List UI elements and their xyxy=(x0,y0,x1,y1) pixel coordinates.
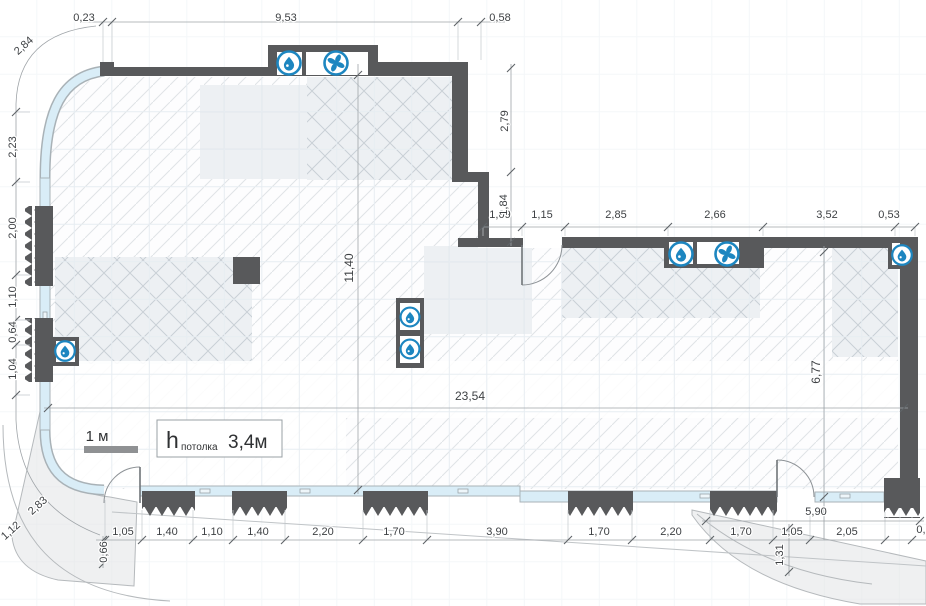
scale-bar-rect xyxy=(84,446,138,453)
fan-icon xyxy=(324,51,348,75)
floor-plan-page: 0,239,530,582,841,091,152,852,663,520,53… xyxy=(0,0,926,606)
dimension-label: 9,53 xyxy=(275,12,296,24)
dimension-label: 1,70 xyxy=(730,526,751,538)
ceiling-height-box: h потолка 3,4м xyxy=(157,420,282,457)
dimension-label: 1,10 xyxy=(201,526,222,538)
ceiling-h-symbol: h xyxy=(166,427,179,453)
dimension-label: 2,66 xyxy=(704,209,725,221)
water-drop-icon xyxy=(55,341,75,361)
dimension-label: 5,90 xyxy=(805,506,826,518)
water-drop-icon xyxy=(401,308,420,327)
water-drop-icon xyxy=(401,340,420,359)
dimension-label: 1,15 xyxy=(531,209,552,221)
dimension-label: 2,20 xyxy=(660,526,681,538)
dimension-label: 2,00 xyxy=(7,217,19,238)
scale-bar-label: 1 м xyxy=(86,428,109,445)
dimension-label: 3,90 xyxy=(486,526,507,538)
ceiling-h-subscript: потолка xyxy=(181,442,218,453)
dimension-label: 1,04 xyxy=(7,358,19,379)
wall-segment xyxy=(103,67,270,76)
dimension-label: 2,20 xyxy=(312,526,333,538)
dimension-label: 1,31 xyxy=(774,544,786,565)
dimension-label: 0,66 xyxy=(98,541,110,562)
dimension-label: 23,54 xyxy=(455,389,485,403)
dimension-label: 0,53 xyxy=(878,209,899,221)
dimension-label: 0, xyxy=(916,524,925,536)
dimension-label: 1,40 xyxy=(156,526,177,538)
dimension-label: 2,85 xyxy=(605,209,626,221)
dimension-label: 2,79 xyxy=(499,110,511,131)
dimension-label: 3,52 xyxy=(816,209,837,221)
wall-segment xyxy=(452,62,468,174)
column xyxy=(233,257,260,284)
wall-segment xyxy=(884,478,920,508)
ceiling-h-value: 3,4м xyxy=(228,432,267,453)
dimension-label: 1,70 xyxy=(588,526,609,538)
dimension-label: 0,23 xyxy=(73,12,94,24)
fan-icon xyxy=(715,242,739,266)
dimension-label: 1,05 xyxy=(112,526,133,538)
dimension-label: 1,05 xyxy=(781,526,802,538)
dimension-label: 1,70 xyxy=(383,526,404,538)
dimension-label: 1,84 xyxy=(498,194,510,215)
wall-segment xyxy=(900,237,918,478)
water-drop-icon xyxy=(278,52,301,75)
dimension-label: 1,10 xyxy=(7,286,19,307)
dimension-label: 6,77 xyxy=(809,360,823,384)
dimension-label: 1,40 xyxy=(247,526,268,538)
dimension-label: 0,64 xyxy=(7,321,19,342)
water-drop-icon xyxy=(892,245,912,265)
dimension-label: 2,05 xyxy=(836,526,857,538)
dimension-label: 0,58 xyxy=(489,12,510,24)
floor-plan-svg: 0,239,530,582,841,091,152,852,663,520,53… xyxy=(0,0,926,606)
dimension-label: 2,23 xyxy=(7,136,19,157)
dimension-label: 11,40 xyxy=(342,253,356,282)
water-drop-icon xyxy=(670,243,693,266)
